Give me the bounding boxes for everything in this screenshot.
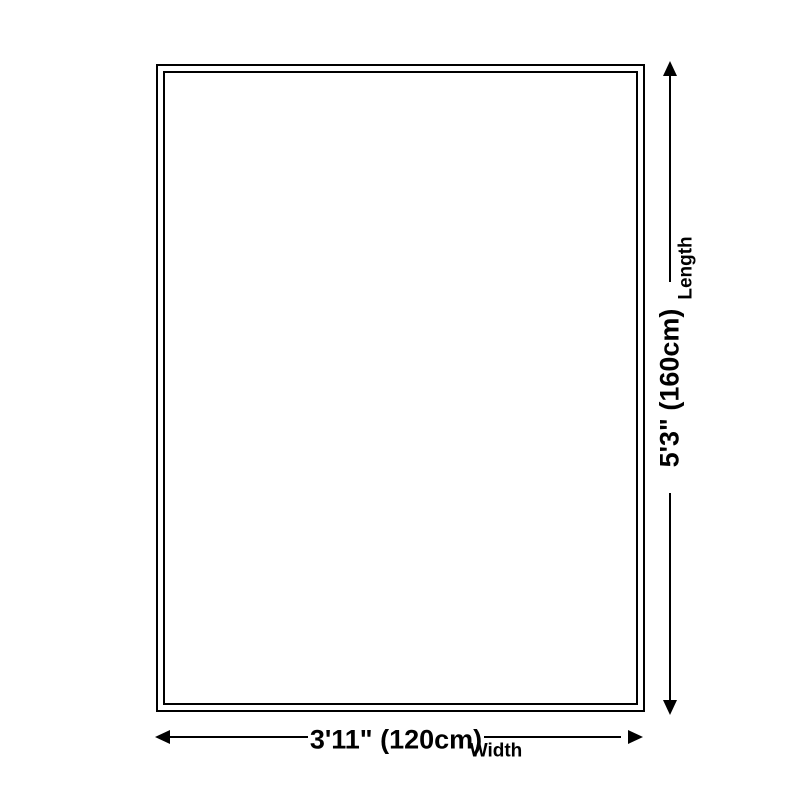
width-value-label: 3'11" (120cm) — [310, 727, 482, 754]
width-axis-label: Width — [470, 742, 523, 761]
arrow-left-icon — [155, 730, 170, 744]
width-dimension: 3'11" (120cm) Width — [0, 0, 800, 800]
width-dimension-line-left — [170, 736, 308, 738]
arrow-right-icon — [628, 730, 643, 744]
width-dimension-line-right — [484, 736, 621, 738]
rug-size-diagram: 5'3" (160cm) Length 3'11" (120cm) Width — [0, 0, 800, 800]
